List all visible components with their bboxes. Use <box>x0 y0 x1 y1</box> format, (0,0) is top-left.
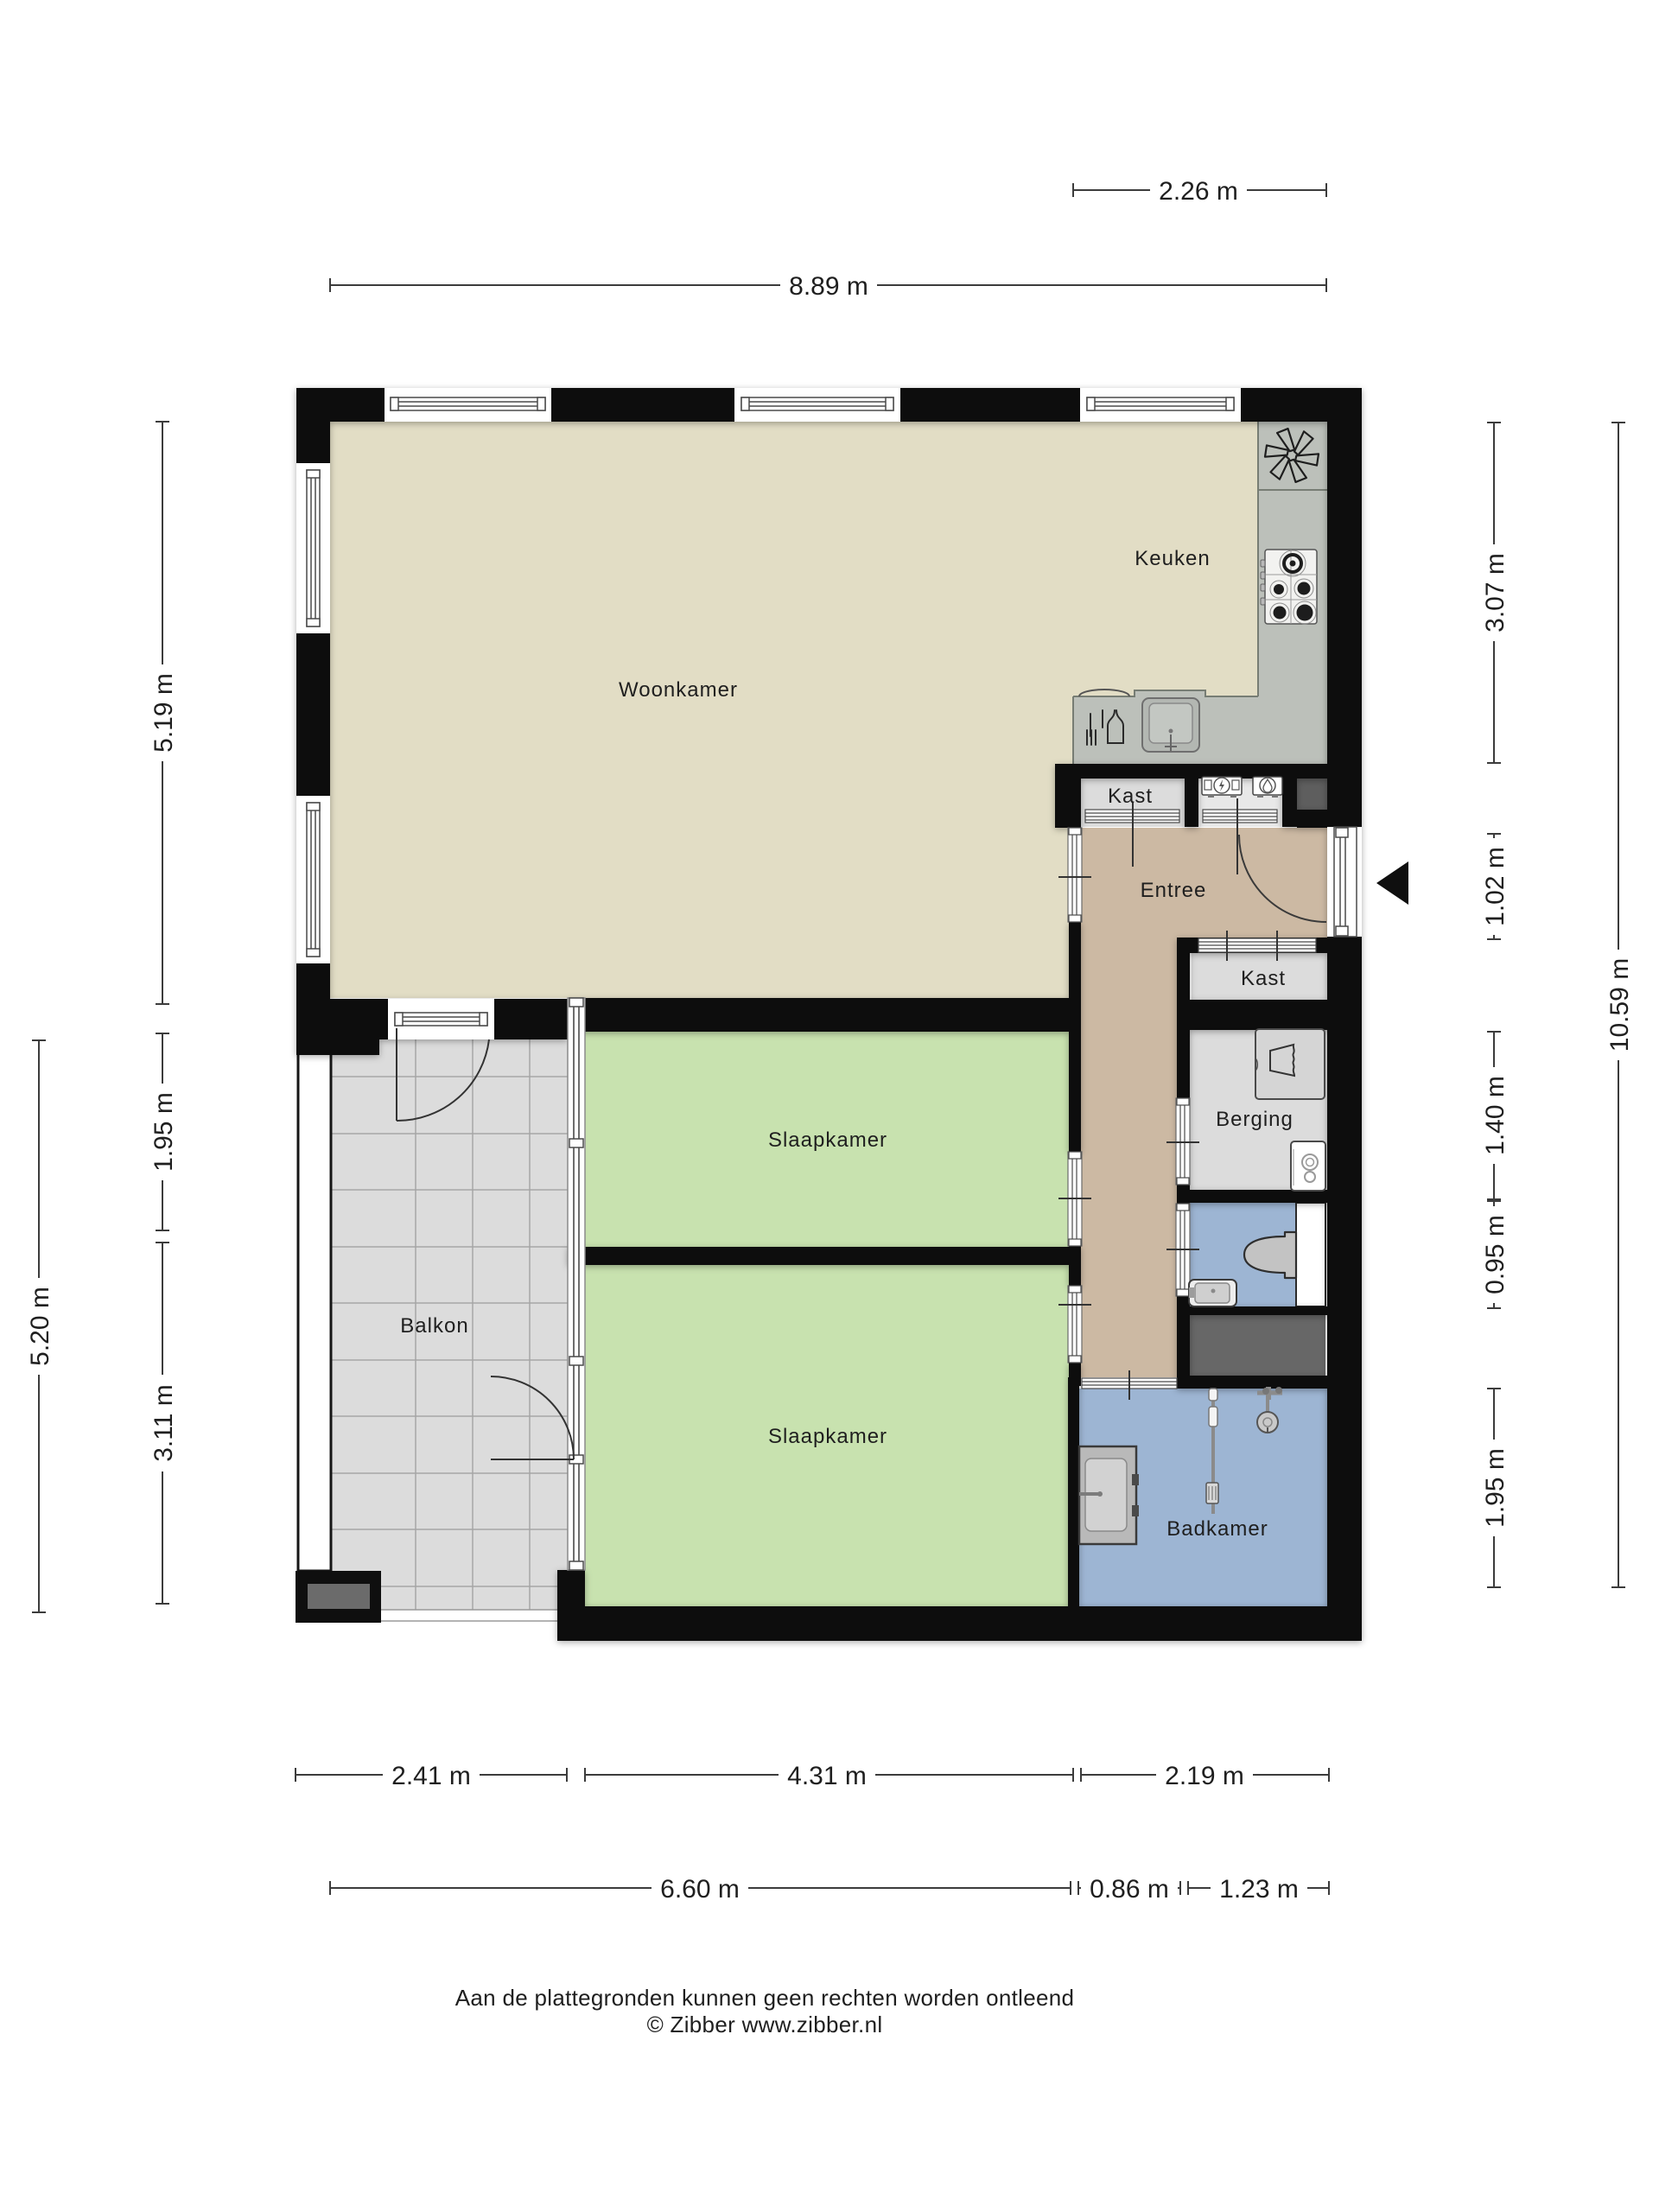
svg-text:Aan de plattegronden kunnen ge: Aan de plattegronden kunnen geen rechten… <box>455 1985 1074 2011</box>
svg-text:Slaapkamer: Slaapkamer <box>768 1425 887 1448</box>
svg-text:0.86 m: 0.86 m <box>1090 1875 1169 1904</box>
svg-text:Balkon: Balkon <box>400 1314 468 1338</box>
svg-text:8.89 m: 8.89 m <box>789 272 868 301</box>
svg-text:1.95 m: 1.95 m <box>1481 1448 1510 1528</box>
svg-text:1.40 m: 1.40 m <box>1481 1076 1510 1155</box>
svg-text:6.60 m: 6.60 m <box>660 1875 740 1904</box>
svg-text:Berging: Berging <box>1216 1108 1294 1131</box>
svg-text:2.19 m: 2.19 m <box>1165 1762 1244 1790</box>
svg-text:2.41 m: 2.41 m <box>391 1762 471 1790</box>
svg-text:1.23 m: 1.23 m <box>1219 1875 1299 1904</box>
svg-text:1.02 m: 1.02 m <box>1481 847 1510 926</box>
svg-text:Woonkamer: Woonkamer <box>619 678 738 702</box>
svg-text:5.19 m: 5.19 m <box>149 673 178 753</box>
svg-text:5.20 m: 5.20 m <box>26 1287 54 1366</box>
svg-text:© Zibber www.zibber.nl: © Zibber www.zibber.nl <box>647 2012 883 2037</box>
svg-text:3.07 m: 3.07 m <box>1481 553 1510 632</box>
svg-text:1.95 m: 1.95 m <box>149 1092 178 1172</box>
svg-text:0.95 m: 0.95 m <box>1481 1215 1510 1294</box>
svg-text:3.11 m: 3.11 m <box>149 1384 178 1462</box>
svg-text:Keuken: Keuken <box>1135 547 1210 570</box>
svg-text:4.31 m: 4.31 m <box>787 1762 867 1790</box>
svg-text:Badkamer: Badkamer <box>1166 1517 1268 1541</box>
svg-text:Entree: Entree <box>1141 879 1207 902</box>
svg-text:2.26 m: 2.26 m <box>1159 177 1238 206</box>
svg-text:Kast: Kast <box>1108 785 1153 808</box>
svg-text:10.59 m: 10.59 m <box>1605 958 1634 1052</box>
svg-text:Kast: Kast <box>1241 967 1286 990</box>
svg-text:Slaapkamer: Slaapkamer <box>768 1128 887 1152</box>
